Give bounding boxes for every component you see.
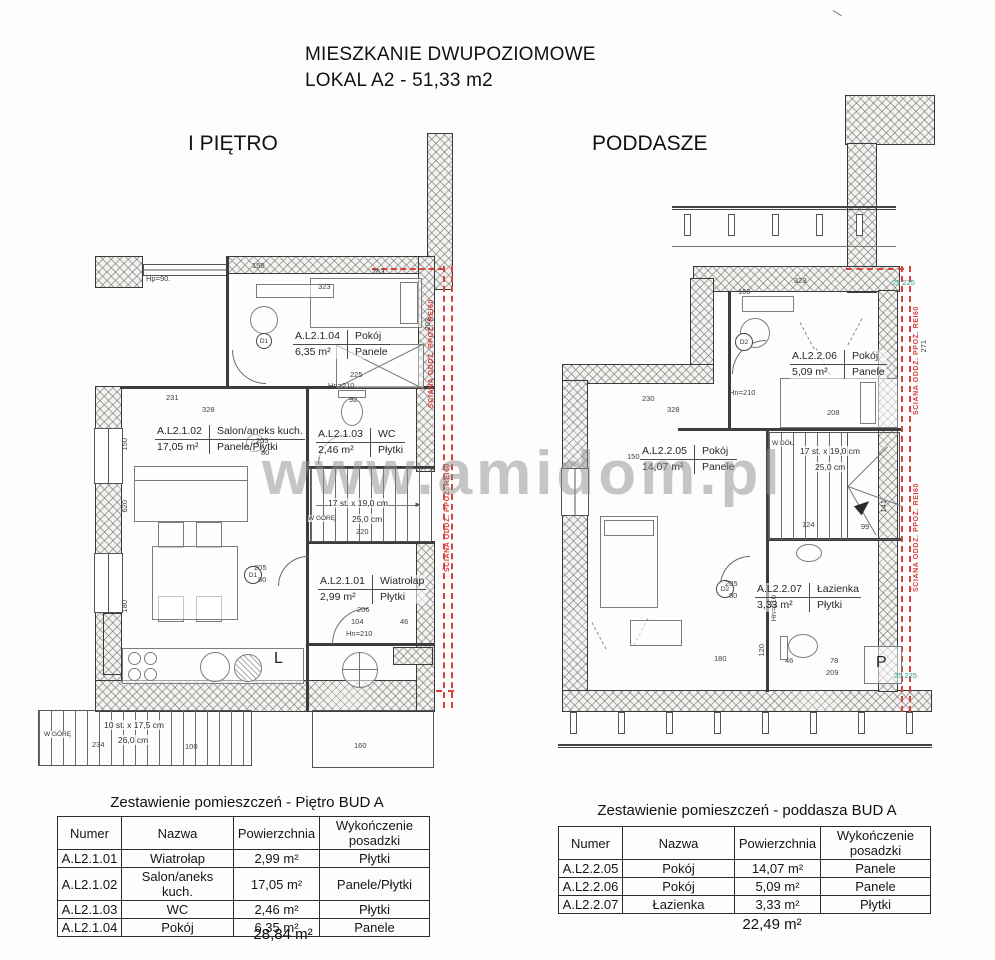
room-number: A.L2.2.07 xyxy=(755,583,810,598)
sink xyxy=(796,544,822,562)
dim: 80 xyxy=(258,575,266,584)
dining-table xyxy=(152,546,238,620)
washer-letter: P xyxy=(876,654,887,672)
post xyxy=(906,712,913,734)
cell-name: Pokój xyxy=(623,860,735,878)
dim: 163 xyxy=(372,267,385,276)
stairs-steps: 17 st. x 19,0 cm xyxy=(800,446,860,456)
sofa-back-line xyxy=(134,480,248,481)
ext-stairs-steps: 10 st. x 17,5 cm xyxy=(104,720,164,730)
ext-stairs-depth: 26,0 cm xyxy=(118,735,148,745)
interior-wall xyxy=(306,386,309,712)
cell-floor: Panele xyxy=(320,919,430,937)
interior-wall xyxy=(728,292,731,430)
dim: 46 xyxy=(400,617,408,626)
room-label: A.L2.2.06Pokój 5,09 m²Panele xyxy=(790,350,887,379)
room-area: 3,33 m² xyxy=(755,598,810,612)
stairs-direction: W GÓRĘ xyxy=(308,515,335,522)
pillow xyxy=(604,520,654,536)
wall xyxy=(562,380,588,702)
sink-bowl xyxy=(234,654,262,682)
room-floor: Panele xyxy=(348,345,390,359)
wall xyxy=(95,256,143,288)
chair xyxy=(158,522,184,548)
room-floor: Płytki xyxy=(373,590,426,604)
dim: 46 xyxy=(785,656,793,665)
dim: 80 xyxy=(729,591,737,600)
cell-area: 5,09 m² xyxy=(735,878,821,896)
balcony-rail xyxy=(558,744,932,748)
dim: 271 xyxy=(919,340,928,353)
chair xyxy=(250,306,278,334)
dim: 234 xyxy=(92,740,105,749)
col-header: Powierzchnia xyxy=(234,817,320,850)
cell-name: Łazienka xyxy=(623,896,735,914)
room-name: Wiatrołap xyxy=(373,575,426,590)
plan-label-attic: PODDASZE xyxy=(592,132,708,156)
cell-number: A.L2.2.06 xyxy=(559,878,623,896)
dim: 620 xyxy=(120,500,129,513)
col-header: Numer xyxy=(559,827,623,860)
table-row: A.L2.1.02Salon/aneks kuch.17,05 m²Panele… xyxy=(58,868,430,901)
ext-stairs-direction: W GÓRĘ xyxy=(44,731,71,738)
wall xyxy=(393,647,433,665)
dim: 141 xyxy=(879,500,888,513)
post xyxy=(816,214,823,236)
pillow xyxy=(860,382,876,424)
sink xyxy=(200,652,230,682)
desk xyxy=(742,296,794,312)
stove-burner xyxy=(128,668,141,681)
room-name: Pokój xyxy=(348,330,390,345)
room-label: A.L2.1.01Wiatrołap 2,99 m²Płytki xyxy=(318,575,426,604)
dim: Hn=210 xyxy=(769,595,778,621)
table-header-row: Numer Nazwa Powierzchnia Wykończenie pos… xyxy=(58,817,430,850)
dim: 150 xyxy=(120,438,129,451)
stairs-depth: 25,0 cm xyxy=(815,462,845,472)
boiler xyxy=(342,652,378,688)
fire-wall-line xyxy=(909,266,911,712)
col-header: Nazwa xyxy=(623,827,735,860)
door-symbol: D2 xyxy=(735,333,753,351)
wall xyxy=(845,95,935,145)
cell-number: A.L2.1.04 xyxy=(58,919,122,937)
dim: 208 xyxy=(827,408,840,417)
room-area: 5,09 m² xyxy=(790,365,845,379)
scan-artifact xyxy=(833,10,842,16)
overhang-rail xyxy=(672,206,896,210)
chair xyxy=(196,522,222,548)
dim: 328 xyxy=(202,405,215,414)
dim: 120 xyxy=(757,644,766,657)
table-header-row: Numer Nazwa Powierzchnia Wykończenie pos… xyxy=(559,827,931,860)
room-number: A.L2.1.02 xyxy=(155,425,210,440)
dim: 124 xyxy=(802,520,815,529)
dim: 328 xyxy=(667,405,680,414)
cell-area: 2,99 m² xyxy=(234,850,320,868)
dim: Hn=210 xyxy=(328,381,354,390)
fire-wall-label: ŚCIANA ODDZ. PPOŻ. REI60 xyxy=(428,288,435,408)
fridge-block xyxy=(103,613,122,675)
col-header: Nazwa xyxy=(122,817,234,850)
table-title-first-floor: Zestawienie pomieszczeń - Piętro BUD A xyxy=(57,794,437,811)
cell-floor: Płytki xyxy=(320,850,430,868)
table-title-attic: Zestawienie pomieszczeń - poddasza BUD A xyxy=(558,802,936,819)
stove-burner xyxy=(144,652,157,665)
room-name: Pokój xyxy=(845,350,887,365)
dim: 205 xyxy=(725,579,738,588)
room-label: A.L2.1.04Pokój 6,35 m²Panele xyxy=(293,330,390,359)
dim: 25 225 xyxy=(894,671,917,680)
table-row: A.L2.2.06Pokój5,09 m²Panele xyxy=(559,878,931,896)
door-arc xyxy=(278,556,308,586)
post xyxy=(618,712,625,734)
cell-floor: Panele xyxy=(821,860,931,878)
post xyxy=(858,712,865,734)
cell-floor: Płytki xyxy=(320,901,430,919)
post xyxy=(728,214,735,236)
cell-number: A.L2.1.03 xyxy=(58,901,122,919)
dim: 92 xyxy=(349,395,357,404)
cell-floor: Panele/Płytki xyxy=(320,868,430,901)
dim: 323 xyxy=(794,276,807,285)
post xyxy=(772,214,779,236)
cell-number: A.L2.2.07 xyxy=(559,896,623,914)
dim: 205 xyxy=(254,563,267,572)
cell-name: Pokój xyxy=(122,919,234,937)
dim: 160 xyxy=(738,287,751,296)
table-row: A.L2.2.07Łazienka3,33 m²Płytki xyxy=(559,896,931,914)
dim: 209 xyxy=(826,668,839,677)
wall xyxy=(95,680,435,712)
plan-label-first-floor: I PIĘTRO xyxy=(188,132,278,156)
dim: 100 xyxy=(185,742,198,751)
table-row: A.L2.2.05Pokój14,07 m²Panele xyxy=(559,860,931,878)
fire-wall-label: ŚCIANA ODDZ. PPOŻ. REI60 xyxy=(913,462,920,592)
cell-floor: Płytki xyxy=(821,896,931,914)
post xyxy=(666,712,673,734)
dim: 220 xyxy=(356,527,369,536)
dim: 180 xyxy=(120,600,129,613)
dim: 323 xyxy=(318,282,331,291)
porch xyxy=(312,710,434,768)
kitchen-letter: L xyxy=(274,650,283,668)
dim: 25 225 xyxy=(892,278,915,287)
fire-wall-label: ŚCIANA ODDZ. PPOŻ. REI60 xyxy=(913,295,920,415)
roof-slope-mark xyxy=(847,318,862,345)
stove-burner xyxy=(128,652,141,665)
room-name: Łazienka xyxy=(810,583,861,598)
cell-area: 3,33 m² xyxy=(735,896,821,914)
pillow xyxy=(400,282,418,324)
dim: 225 xyxy=(350,370,363,379)
room-area: 2,99 m² xyxy=(318,590,373,604)
dim: Hn=210 xyxy=(729,388,755,397)
cell-number: A.L2.1.02 xyxy=(58,868,122,901)
dim: 206 xyxy=(357,605,370,614)
table-total-first-floor: 28,84 m² xyxy=(233,926,333,943)
stairs-depth: 25,0 cm xyxy=(352,514,382,524)
interior-wall xyxy=(306,643,435,646)
page-title-line2: LOKAL A2 - 51,33 m2 xyxy=(305,70,493,92)
toilet-bowl xyxy=(788,634,818,658)
stove-burner xyxy=(144,668,157,681)
window xyxy=(94,553,123,613)
rooms-table-attic: Numer Nazwa Powierzchnia Wykończenie pos… xyxy=(558,826,931,914)
wall xyxy=(562,690,932,712)
col-header: Powierzchnia xyxy=(735,827,821,860)
door-arc xyxy=(232,350,266,384)
dim: 231 xyxy=(166,393,179,402)
cell-name: Pokój xyxy=(623,878,735,896)
post xyxy=(714,712,721,734)
sofa xyxy=(134,466,248,522)
room-number: A.L2.2.06 xyxy=(790,350,845,365)
cell-name: Salon/aneks kuch. xyxy=(122,868,234,901)
cell-name: WC xyxy=(122,901,234,919)
table-row: A.L2.1.01Wiatrołap2,99 m²Płytki xyxy=(58,850,430,868)
dim: 180 xyxy=(714,654,727,663)
cell-area: 17,05 m² xyxy=(234,868,320,901)
post xyxy=(856,214,863,236)
boiler-line xyxy=(359,652,360,688)
dim: 160 xyxy=(354,741,367,750)
window xyxy=(94,428,123,484)
dim: Hp=90. xyxy=(146,274,170,283)
dim: 78 xyxy=(830,656,838,665)
table xyxy=(630,620,682,646)
room-number: A.L2.1.01 xyxy=(318,575,373,590)
interior-wall xyxy=(226,256,229,388)
dim: Hn=210 xyxy=(346,629,372,638)
bed xyxy=(780,378,898,428)
cell-floor: Panele xyxy=(821,878,931,896)
dim: 150 xyxy=(252,261,265,270)
table-row: A.L2.1.03WC2,46 m²Płytki xyxy=(58,901,430,919)
cell-number: A.L2.2.05 xyxy=(559,860,623,878)
room-area: 6,35 m² xyxy=(293,345,348,359)
fire-wall-line xyxy=(436,690,454,692)
floorplan-sheet: MIESZKANIE DWUPOZIOMOWE LOKAL A2 - 51,33… xyxy=(0,0,995,960)
watermark: www.amidom.pl xyxy=(262,438,784,509)
post xyxy=(762,712,769,734)
fire-wall-line xyxy=(846,268,904,270)
cell-number: A.L2.1.01 xyxy=(58,850,122,868)
boiler-line xyxy=(342,669,378,670)
post xyxy=(570,712,577,734)
cell-name: Wiatrołap xyxy=(122,850,234,868)
page-title-line1: MIESZKANIE DWUPOZIOMOWE xyxy=(305,44,596,66)
room-floor: Panele xyxy=(845,365,887,379)
post xyxy=(810,712,817,734)
dim: 203 xyxy=(423,318,432,331)
post xyxy=(684,214,691,236)
room-floor: Płytki xyxy=(810,598,861,612)
dim: 104 xyxy=(351,617,364,626)
dim: 99 xyxy=(861,522,869,531)
table-total-attic: 22,49 m² xyxy=(722,916,822,933)
dim: 230 xyxy=(642,394,655,403)
col-header: Numer xyxy=(58,817,122,850)
col-header: Wykończenie posadzki xyxy=(320,817,430,850)
roof-slope-mark xyxy=(592,622,607,649)
cell-area: 2,46 m² xyxy=(234,901,320,919)
room-number: A.L2.1.04 xyxy=(293,330,348,345)
room-area: 17,05 m² xyxy=(155,440,210,454)
roof-slope-mark xyxy=(800,322,815,349)
col-header: Wykończenie posadzki xyxy=(821,827,931,860)
overhang-line xyxy=(672,246,896,247)
interior-wall xyxy=(678,428,902,431)
door-symbol: D1 xyxy=(256,333,272,349)
rooms-table-first-floor: Numer Nazwa Powierzchnia Wykończenie pos… xyxy=(57,816,430,937)
cell-area: 14,07 m² xyxy=(735,860,821,878)
